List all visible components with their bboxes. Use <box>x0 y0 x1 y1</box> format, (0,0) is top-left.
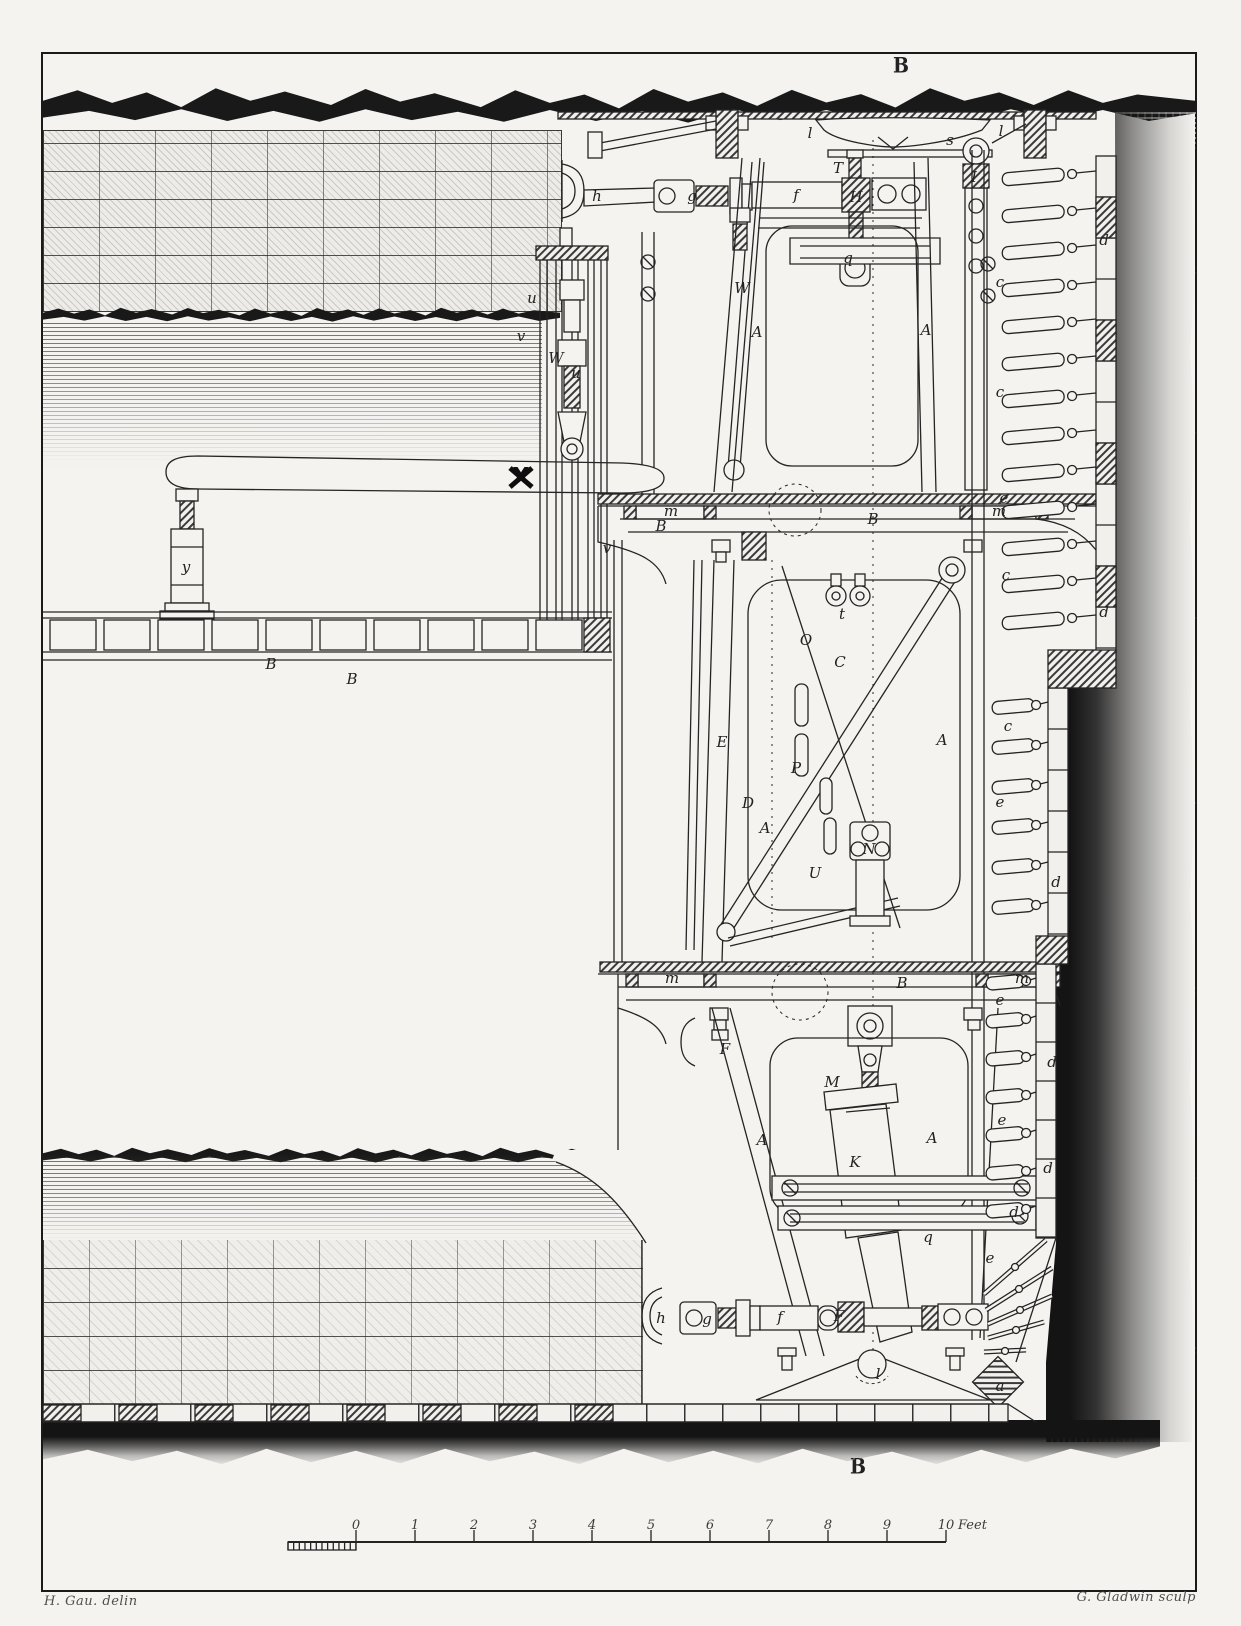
scale-tick-label: 3 <box>529 1518 537 1533</box>
scale-tick-label: 1 <box>411 1518 419 1533</box>
credit-delineator: H. Gau. delin <box>44 1594 138 1609</box>
scale-tick-label: 5 <box>647 1518 655 1533</box>
scale-tick-label: 7 <box>765 1518 773 1533</box>
scale-tick-label: 4 <box>588 1518 596 1533</box>
engraving-linework <box>0 0 1241 1626</box>
scale-tick-label: 6 <box>706 1518 714 1533</box>
scale-tick-label: 0 <box>352 1518 360 1533</box>
scale-tick-label: 9 <box>883 1518 891 1533</box>
scale-tick-label: 2 <box>470 1518 478 1533</box>
engraving-plate: B B <box>0 0 1241 1626</box>
scale-tick-label: 10 <box>938 1518 955 1533</box>
scale-tick-label: 8 <box>824 1518 832 1533</box>
scale-unit-label: Feet <box>958 1518 987 1533</box>
credit-engraver: G. Gladwin sculp <box>990 1590 1196 1605</box>
